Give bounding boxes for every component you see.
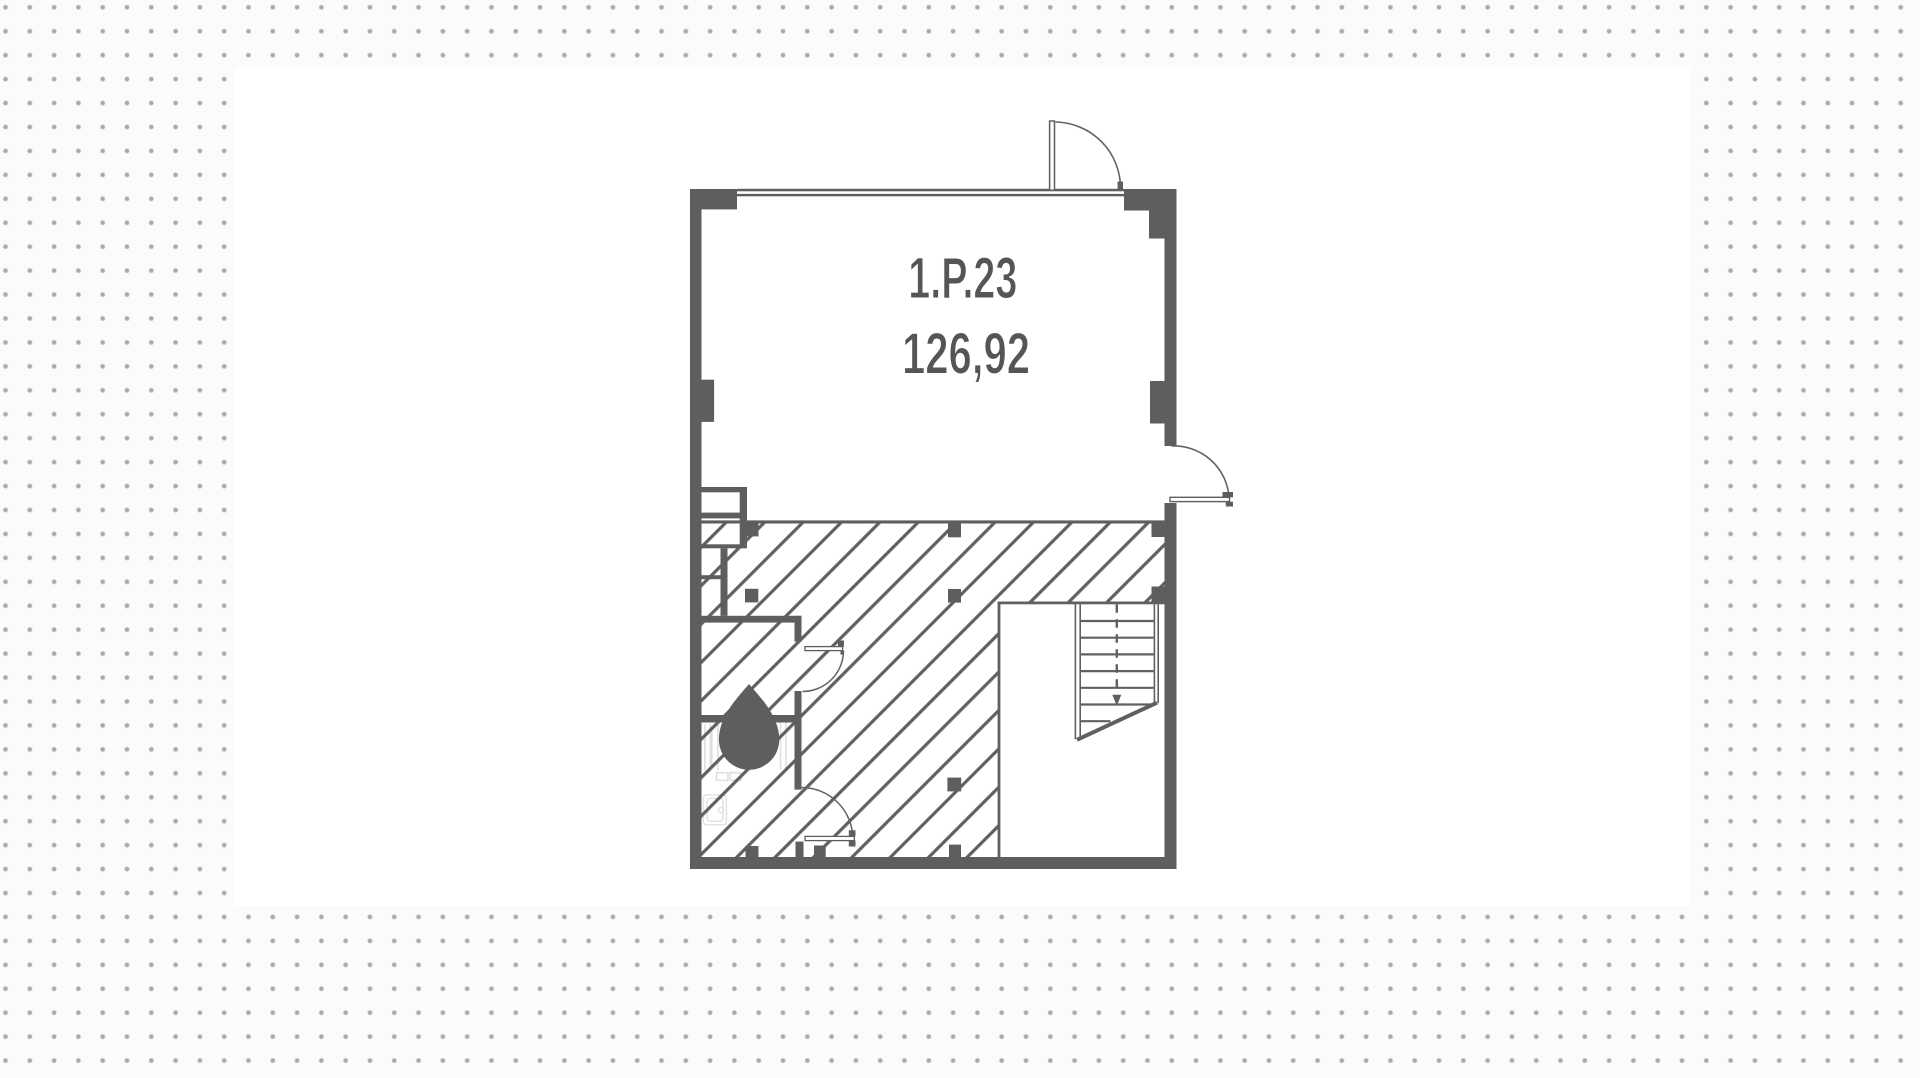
svg-text:1.P.23: 1.P.23 (908, 246, 1017, 311)
svg-text:126,92: 126,92 (902, 322, 1030, 387)
